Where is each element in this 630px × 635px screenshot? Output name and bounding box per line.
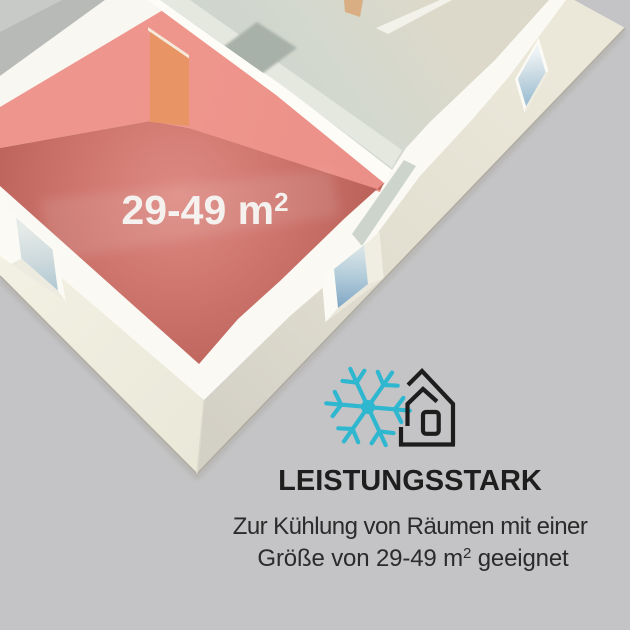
svg-text:LEISTUNGSSTARK: LEISTUNGSSTARK <box>278 465 542 497</box>
svg-text:Zur Kühlung von Räumen mit ein: Zur Kühlung von Räumen mit einer <box>233 513 588 540</box>
svg-text:29-49 m2: 29-49 m2 <box>121 187 288 233</box>
svg-text:Größe von 29-49 m2 geeignet: Größe von 29-49 m2 geeignet <box>257 545 569 572</box>
